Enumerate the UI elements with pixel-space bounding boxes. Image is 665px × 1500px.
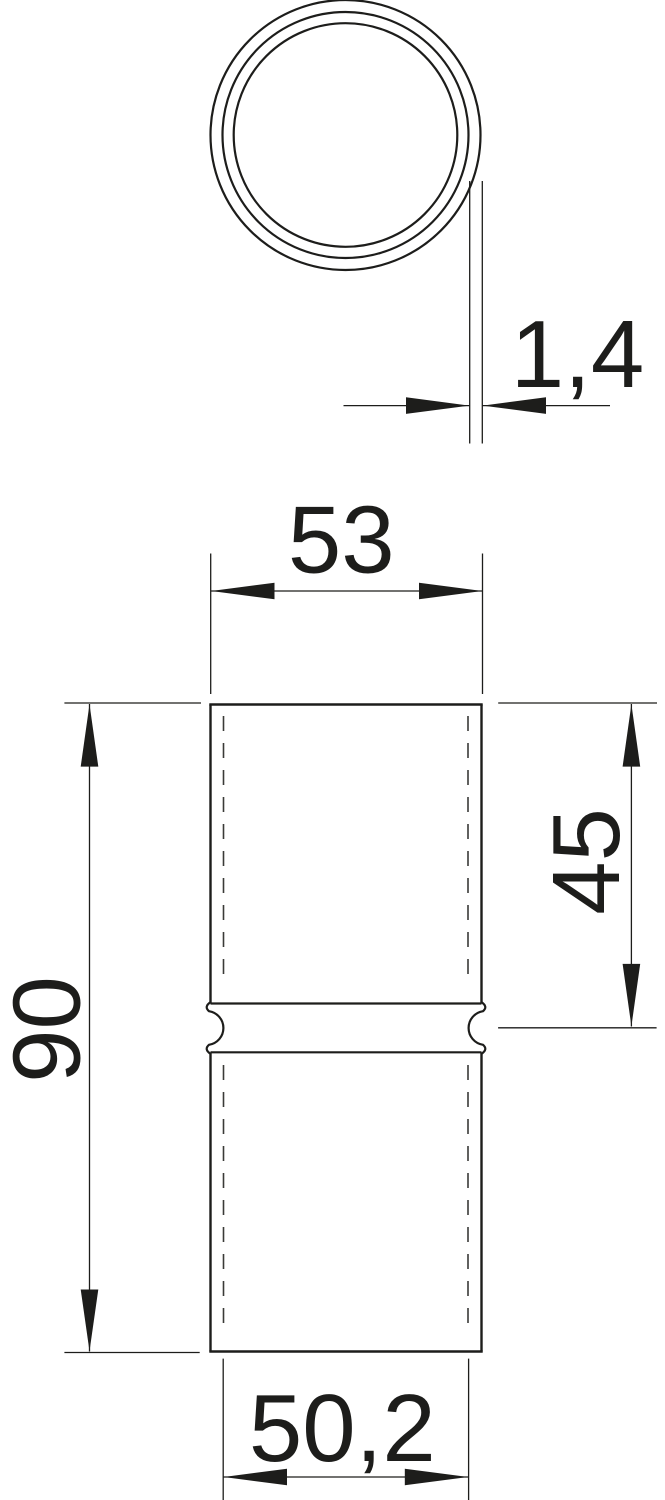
svg-text:45: 45	[533, 808, 640, 915]
svg-text:1,4: 1,4	[511, 301, 644, 408]
svg-text:50,2: 50,2	[249, 1375, 436, 1482]
svg-text:90: 90	[0, 976, 100, 1083]
svg-text:53: 53	[288, 487, 395, 594]
